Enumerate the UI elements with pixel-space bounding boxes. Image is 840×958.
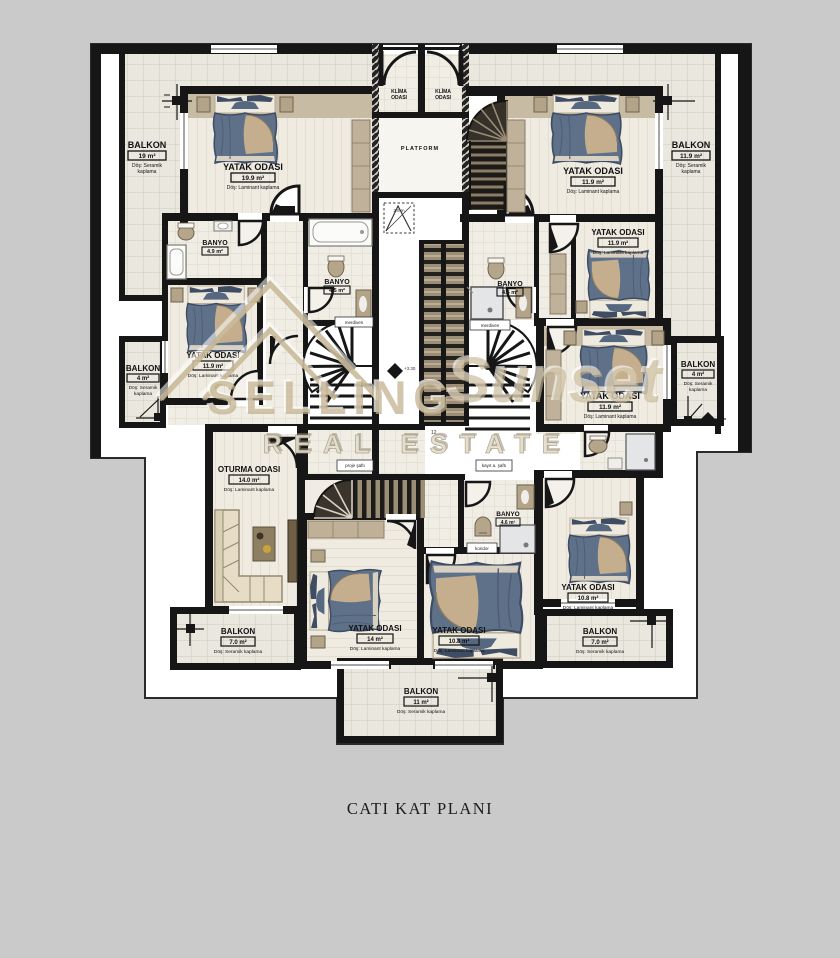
svg-text:4.5 m²: 4.5 m² xyxy=(502,289,518,296)
svg-text:4.5 m²: 4.5 m² xyxy=(329,287,345,294)
svg-text:PLATFORM: PLATFORM xyxy=(401,146,439,152)
svg-text:BANYO: BANYO xyxy=(324,279,350,286)
svg-text:merdiven: merdiven xyxy=(345,320,364,325)
svg-text:YATAK ODASI: YATAK ODASI xyxy=(432,626,485,635)
svg-text:4.9 m²: 4.9 m² xyxy=(207,248,223,255)
svg-text:4 m²: 4 m² xyxy=(137,375,149,382)
svg-text:Döş: Laminant kaplama: Döş: Laminant kaplama xyxy=(567,189,620,195)
svg-text:Döş: Seramik kaplama: Döş: Seramik kaplama xyxy=(397,709,446,715)
svg-text:kaplama: kaplama xyxy=(134,391,152,397)
svg-text:ODASI: ODASI xyxy=(435,95,451,101)
svg-text:CATI KAT PLANI: CATI KAT PLANI xyxy=(347,799,493,818)
svg-text:proje şaftı: proje şaftı xyxy=(345,463,365,468)
svg-text:Döş: Laminant kaplama: Döş: Laminant kaplama xyxy=(224,487,275,493)
svg-text:REAL ESTATE: REAL ESTATE xyxy=(263,429,571,459)
svg-text:ODASI: ODASI xyxy=(391,95,407,101)
svg-text:4.6 m²: 4.6 m² xyxy=(501,520,516,526)
svg-text:YATAK ODASI: YATAK ODASI xyxy=(348,624,401,633)
svg-text:BANYO: BANYO xyxy=(496,511,519,518)
svg-text:Döş: Seramik kaplama: Döş: Seramik kaplama xyxy=(214,649,263,655)
svg-text:2.6 m: 2.6 m xyxy=(393,208,405,213)
svg-text:koridor: koridor xyxy=(475,546,489,551)
svg-text:7.0 m²: 7.0 m² xyxy=(229,639,246,646)
svg-text:19.9 m²: 19.9 m² xyxy=(242,175,265,182)
svg-text:11.9 m²: 11.9 m² xyxy=(582,179,605,186)
svg-text:19 m²: 19 m² xyxy=(139,153,157,160)
svg-text:Döş: Laminant kaplama: Döş: Laminant kaplama xyxy=(350,646,401,652)
svg-text:YATAK ODASI: YATAK ODASI xyxy=(563,166,623,176)
svg-text:Döş: Laminant kaplama: Döş: Laminant kaplama xyxy=(434,648,485,654)
svg-text:BANYO: BANYO xyxy=(497,281,523,288)
svg-text:Döş: Seramik: Döş: Seramik xyxy=(129,385,158,391)
svg-text:kayıt a. şaftı: kayıt a. şaftı xyxy=(482,463,506,468)
svg-text:KLİMA: KLİMA xyxy=(435,88,451,95)
svg-text:YATAK ODASI: YATAK ODASI xyxy=(591,228,644,237)
svg-text:10.8 m²: 10.8 m² xyxy=(449,638,470,645)
svg-text:BALKON: BALKON xyxy=(404,687,438,696)
svg-text:KLİMA: KLİMA xyxy=(391,88,407,95)
svg-text:4 m²: 4 m² xyxy=(692,371,704,378)
svg-text:Döş: Laminant kaplama: Döş: Laminant kaplama xyxy=(227,185,280,191)
svg-text:BALKON: BALKON xyxy=(583,627,617,636)
svg-text:11.9 m²: 11.9 m² xyxy=(680,153,703,160)
svg-text:Döş: Laminant kaplama: Döş: Laminant kaplama xyxy=(593,250,644,256)
svg-text:14 m²: 14 m² xyxy=(367,636,383,643)
svg-text:7.0 m²: 7.0 m² xyxy=(591,639,608,646)
svg-text:kaplama: kaplama xyxy=(689,387,707,393)
svg-text:11 m²: 11 m² xyxy=(413,699,428,706)
svg-text:10.8 m²: 10.8 m² xyxy=(578,595,599,602)
svg-text:SELLING: SELLING xyxy=(207,371,456,424)
svg-text:11.9 m²: 11.9 m² xyxy=(608,240,628,247)
svg-text:merdiven: merdiven xyxy=(481,323,500,328)
svg-text:14.0 m²: 14.0 m² xyxy=(239,477,260,484)
svg-text:BANYO: BANYO xyxy=(202,240,228,247)
svg-text:YATAK ODASI: YATAK ODASI xyxy=(561,583,614,592)
svg-text:Döş: Seramik: Döş: Seramik xyxy=(684,381,713,387)
svg-text:BALKON: BALKON xyxy=(672,140,711,150)
svg-text:kaplama: kaplama xyxy=(138,169,157,175)
svg-text:Döş: Laminant kaplama: Döş: Laminant kaplama xyxy=(563,605,614,611)
svg-text:BALKON: BALKON xyxy=(681,360,715,369)
svg-text:BALKON: BALKON xyxy=(126,364,160,373)
svg-text:BALKON: BALKON xyxy=(128,140,167,150)
svg-text:kaplama: kaplama xyxy=(682,169,701,175)
svg-text:Döş: Seramik kaplama: Döş: Seramik kaplama xyxy=(576,649,625,655)
svg-text:YATAK ODASI: YATAK ODASI xyxy=(223,162,283,172)
svg-text:OTURMA ODASI: OTURMA ODASI xyxy=(218,465,280,474)
svg-text:Sunset: Sunset xyxy=(448,344,664,416)
svg-text:BALKON: BALKON xyxy=(221,627,255,636)
